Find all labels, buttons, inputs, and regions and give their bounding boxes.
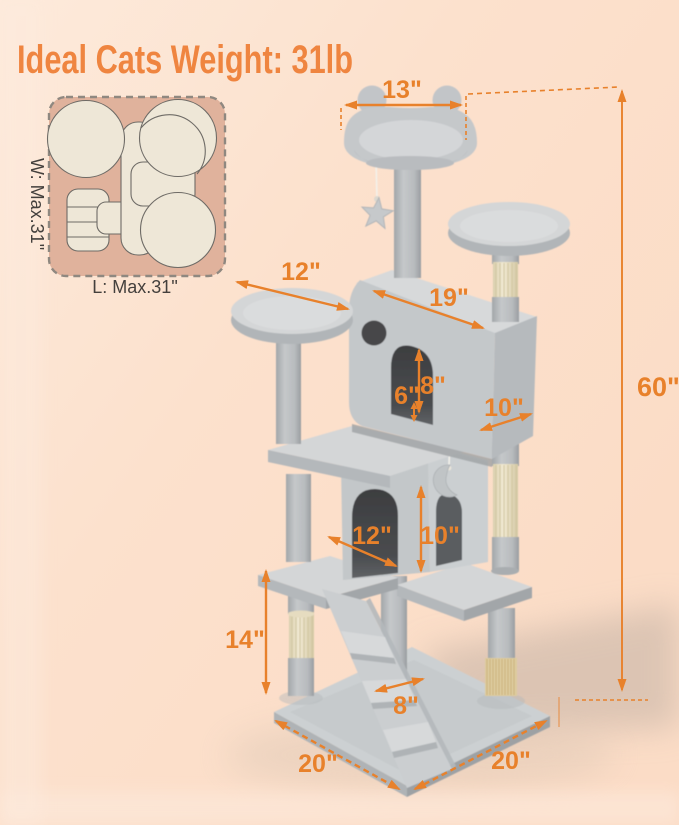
- svg-text:19": 19": [429, 284, 469, 312]
- svg-text:60": 60": [637, 372, 679, 402]
- svg-text:14": 14": [225, 626, 265, 654]
- svg-text:W: Max.31": W: Max.31": [27, 158, 47, 250]
- svg-text:Ideal Cats Weight: 31lb: Ideal Cats Weight: 31lb: [17, 38, 353, 82]
- svg-text:12": 12": [352, 522, 392, 550]
- svg-text:12": 12": [281, 258, 321, 286]
- svg-text:6": 6": [394, 382, 420, 410]
- svg-text:20": 20": [298, 750, 338, 778]
- svg-text:8": 8": [393, 692, 419, 720]
- svg-text:10": 10": [420, 522, 460, 550]
- svg-text:13": 13": [382, 76, 422, 104]
- svg-text:8": 8": [420, 372, 446, 400]
- svg-text:20": 20": [491, 747, 531, 775]
- svg-text:L: Max.31": L: Max.31": [92, 277, 177, 297]
